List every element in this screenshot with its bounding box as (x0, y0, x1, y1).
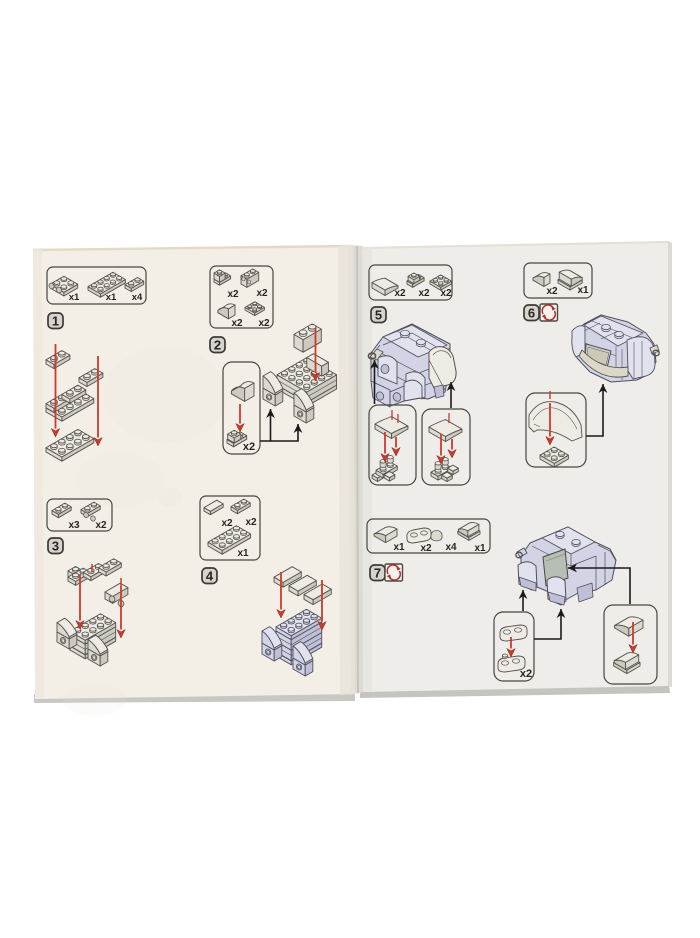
svg-text:5: 5 (375, 307, 382, 322)
svg-text:x2: x2 (420, 543, 432, 554)
svg-text:x4: x4 (132, 292, 143, 303)
svg-text:1: 1 (52, 313, 59, 328)
svg-text:7: 7 (374, 565, 381, 580)
svg-text:x2: x2 (394, 288, 406, 299)
svg-text:x1: x1 (106, 292, 117, 303)
svg-text:x3: x3 (68, 520, 80, 531)
svg-text:x2: x2 (440, 288, 452, 299)
svg-text:4: 4 (206, 568, 214, 583)
svg-text:3: 3 (52, 538, 59, 553)
svg-text:x1: x1 (577, 285, 589, 296)
svg-text:x2: x2 (418, 288, 430, 299)
svg-text:x4: x4 (445, 542, 457, 553)
svg-text:x2: x2 (221, 518, 233, 529)
svg-text:x1: x1 (69, 292, 80, 303)
svg-text:x2: x2 (245, 517, 257, 528)
svg-text:x2: x2 (231, 318, 243, 329)
svg-text:x2: x2 (243, 441, 255, 453)
svg-text:x2: x2 (546, 286, 558, 297)
svg-text:x2: x2 (258, 318, 270, 329)
svg-text:x2: x2 (95, 520, 107, 531)
svg-text:x1: x1 (393, 542, 405, 553)
svg-text:x2: x2 (520, 668, 532, 680)
svg-text:6: 6 (528, 305, 535, 320)
svg-text:2: 2 (214, 337, 221, 352)
svg-text:x1: x1 (474, 543, 486, 554)
svg-text:x2: x2 (227, 289, 239, 300)
svg-text:x2: x2 (256, 288, 268, 299)
svg-text:x1: x1 (237, 548, 249, 559)
